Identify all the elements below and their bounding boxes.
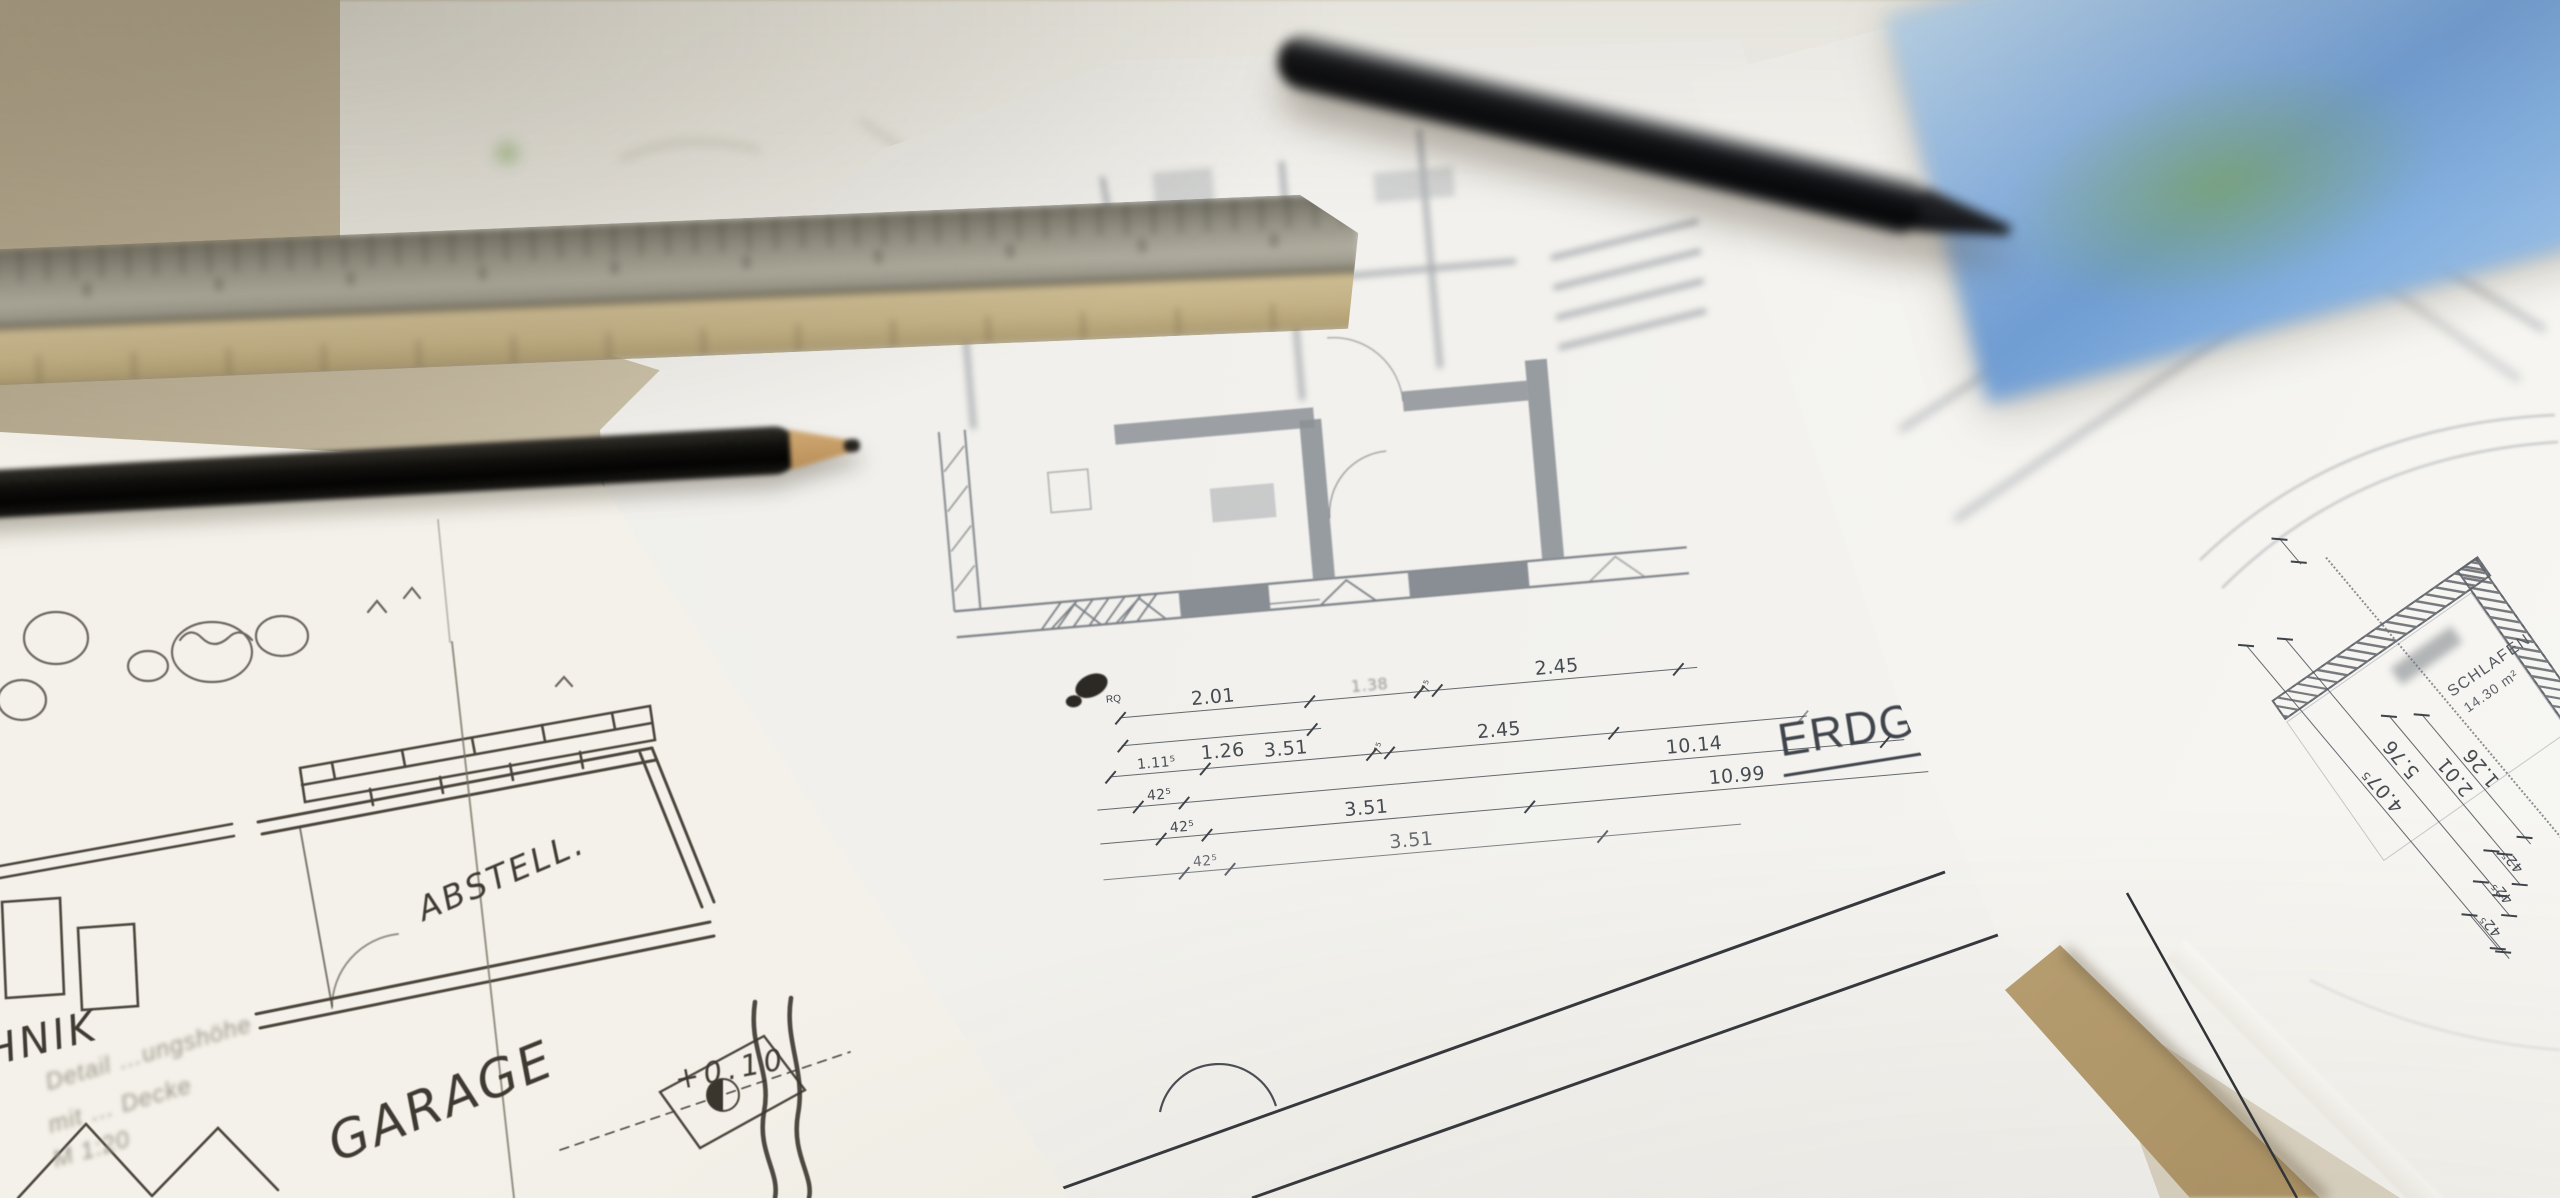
tree-scribbles xyxy=(0,588,572,720)
desk-photo-scene: 2.01 1.38 7⁵ 2.45 1.26 1.11⁵ 3.51 7⁵ 2.4… xyxy=(0,0,2560,1198)
left-edge-shapes xyxy=(0,824,278,1198)
brick-wall xyxy=(300,706,655,805)
pencil-lead-tip xyxy=(844,439,861,453)
level-marker-icon xyxy=(560,1036,850,1150)
hedge-wavy-lines xyxy=(754,998,810,1198)
